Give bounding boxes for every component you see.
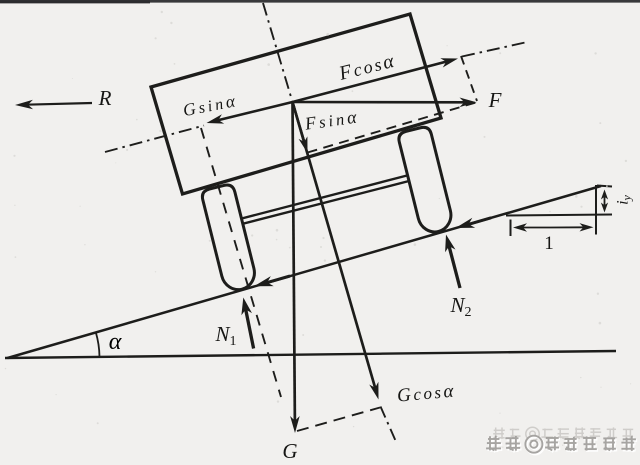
svg-text:iy: iy bbox=[615, 194, 634, 204]
svg-text:Gsinα: Gsinα bbox=[181, 90, 239, 120]
svg-text:G: G bbox=[282, 439, 297, 463]
svg-text:Fsinα: Fsinα bbox=[303, 106, 361, 134]
svg-text:α: α bbox=[109, 329, 122, 355]
svg-text:F: F bbox=[488, 88, 502, 112]
svg-text:N1: N1 bbox=[214, 322, 236, 349]
svg-text:R: R bbox=[98, 86, 112, 110]
svg-text:1: 1 bbox=[544, 233, 554, 254]
svg-text:Gcosα: Gcosα bbox=[396, 380, 456, 406]
svg-text:N2: N2 bbox=[449, 293, 471, 320]
svg-text:Fcosα: Fcosα bbox=[336, 50, 398, 86]
